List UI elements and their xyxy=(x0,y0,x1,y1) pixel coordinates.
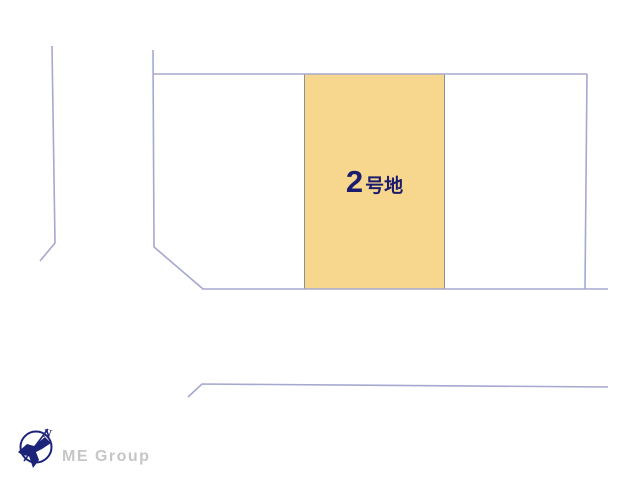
compass-north-label: N xyxy=(41,426,54,441)
company-logo-text: ME Group xyxy=(62,448,150,466)
plot-diagram: 2 号地 N ME Group xyxy=(0,0,640,480)
bird-silhouette xyxy=(18,437,51,468)
compass-bird-icon: N xyxy=(0,0,640,480)
